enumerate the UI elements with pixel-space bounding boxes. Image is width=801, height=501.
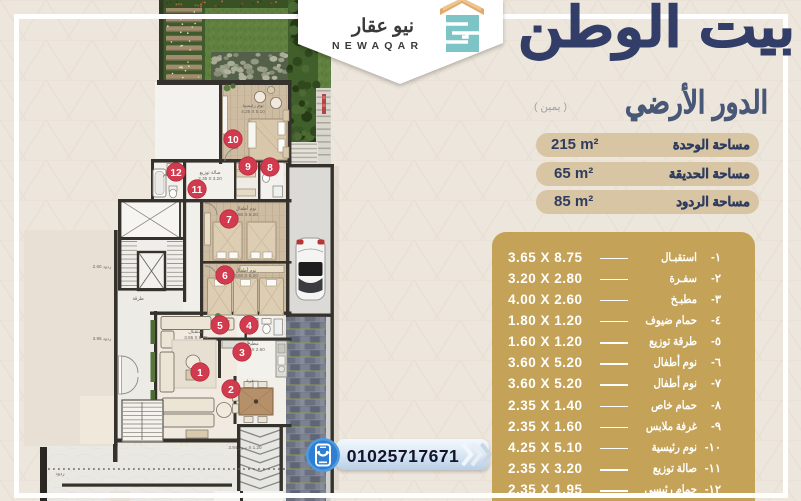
svg-text:نيو عقار: نيو عقار <box>350 16 414 37</box>
svg-text:NEWAQAR: NEWAQAR <box>332 40 423 52</box>
